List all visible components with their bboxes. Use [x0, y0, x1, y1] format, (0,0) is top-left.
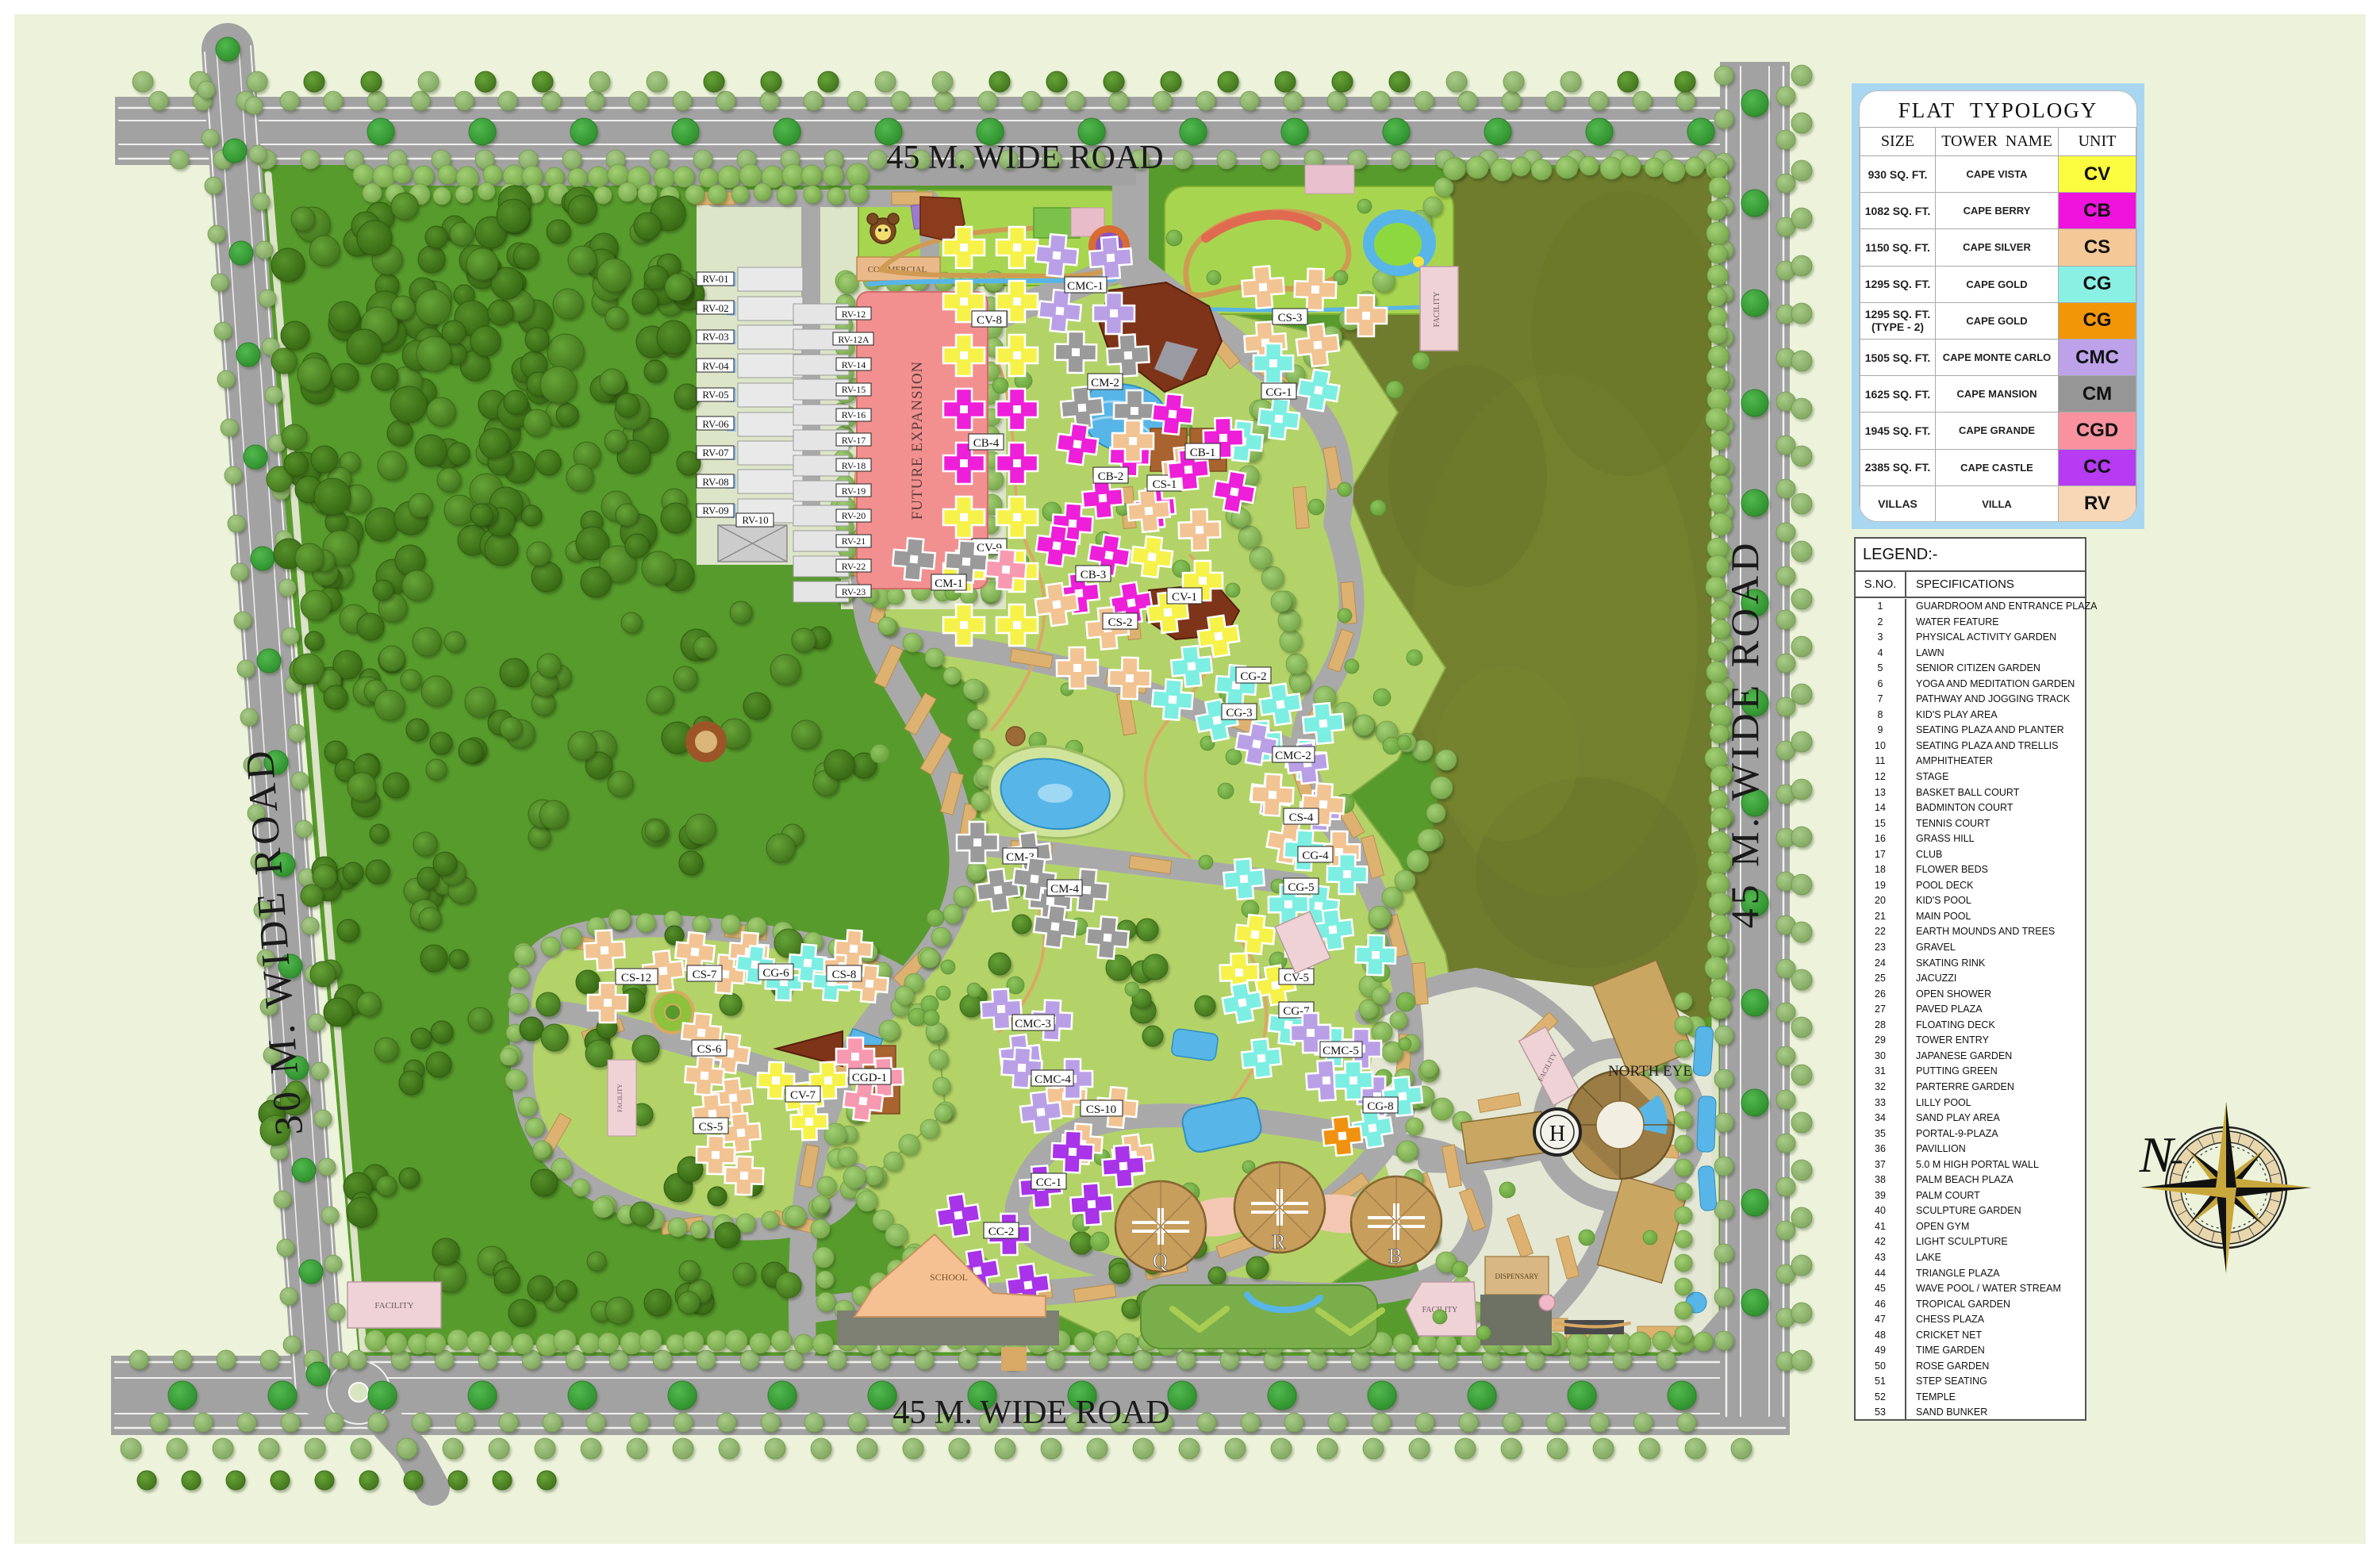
svg-text:NORTH EYE: NORTH EYE	[1608, 1063, 1692, 1080]
svg-text:CM-4: CM-4	[1050, 883, 1079, 896]
svg-text:RV-15: RV-15	[842, 384, 866, 395]
svg-text:CV-1: CV-1	[1172, 591, 1197, 604]
svg-text:CM-1: CM-1	[935, 578, 963, 590]
svg-text:CMC-3: CMC-3	[1015, 1018, 1051, 1030]
svg-text:RV-16: RV-16	[842, 409, 866, 420]
svg-text:45 M. WIDE ROAD: 45 M. WIDE ROAD	[886, 140, 1163, 176]
svg-text:CS-10: CS-10	[1086, 1103, 1116, 1116]
svg-text:CB-1: CB-1	[1190, 447, 1216, 459]
svg-text:RV-20: RV-20	[842, 510, 866, 521]
svg-text:FACILITY: FACILITY	[616, 1084, 624, 1112]
svg-text:CS-5: CS-5	[699, 1121, 724, 1134]
svg-text:CG-8: CG-8	[1367, 1100, 1393, 1113]
svg-text:CMC-1: CMC-1	[1067, 280, 1104, 293]
svg-text:CG-6: CG-6	[762, 967, 789, 980]
svg-text:RV-04: RV-04	[702, 360, 729, 372]
svg-text:RV-17: RV-17	[842, 435, 866, 446]
svg-text:RV-01: RV-01	[702, 273, 728, 285]
svg-text:RV-14: RV-14	[842, 359, 866, 370]
svg-text:DISPENSARY: DISPENSARY	[1495, 1272, 1539, 1280]
svg-text:RV-02: RV-02	[702, 302, 728, 314]
svg-text:CB-2: CB-2	[1098, 470, 1124, 483]
svg-text:CMC-2: CMC-2	[1275, 750, 1311, 762]
svg-text:45 M. WIDE ROAD: 45 M. WIDE ROAD	[1722, 539, 1767, 929]
svg-text:CS-2: CS-2	[1108, 616, 1133, 629]
svg-text:RV-10: RV-10	[742, 514, 768, 526]
svg-text:RV-09: RV-09	[702, 505, 728, 516]
svg-text:CG-4: CG-4	[1302, 850, 1329, 862]
svg-text:RV-12A: RV-12A	[838, 334, 869, 345]
svg-text:FACILITY: FACILITY	[1433, 292, 1441, 328]
svg-text:CB-3: CB-3	[1081, 569, 1107, 581]
svg-text:FACILITY: FACILITY	[374, 1301, 413, 1310]
svg-text:CV-9: CV-9	[977, 542, 1002, 555]
svg-text:R: R	[1272, 1230, 1286, 1253]
svg-text:CG-3: CG-3	[1226, 707, 1252, 720]
svg-text:RV-22: RV-22	[842, 561, 866, 572]
svg-text:N: N	[2139, 1126, 2176, 1183]
svg-text:CMC-4: CMC-4	[1035, 1073, 1071, 1086]
svg-text:CS-4: CS-4	[1289, 812, 1314, 824]
svg-text:CG-5: CG-5	[1288, 881, 1314, 894]
svg-text:RV-19: RV-19	[842, 485, 866, 497]
svg-text:CM-2: CM-2	[1091, 377, 1119, 389]
svg-text:CS-6: CS-6	[697, 1043, 722, 1056]
svg-text:CC-1: CC-1	[1036, 1176, 1062, 1189]
svg-text:SCHOOL: SCHOOL	[930, 1272, 968, 1283]
svg-text:CGD-1: CGD-1	[852, 1072, 887, 1084]
svg-text:FUTURE EXPANSION: FUTURE EXPANSION	[909, 361, 926, 520]
svg-text:RV-21: RV-21	[842, 535, 866, 547]
svg-text:Q: Q	[1153, 1249, 1168, 1272]
svg-text:B: B	[1388, 1245, 1402, 1268]
svg-text:RV-07: RV-07	[702, 447, 729, 459]
svg-text:CC-2: CC-2	[988, 1226, 1015, 1238]
svg-text:CV-7: CV-7	[790, 1089, 816, 1102]
svg-text:CS-12: CS-12	[621, 972, 651, 984]
svg-text:H: H	[1549, 1122, 1565, 1146]
svg-text:RV-18: RV-18	[842, 460, 866, 471]
svg-text:RV-05: RV-05	[702, 389, 728, 401]
svg-text:CS-3: CS-3	[1278, 312, 1303, 324]
svg-text:RV-08: RV-08	[702, 476, 728, 488]
svg-text:CMC-5: CMC-5	[1322, 1045, 1359, 1057]
svg-text:RV-23: RV-23	[842, 586, 866, 597]
svg-text:CV-8: CV-8	[977, 314, 1002, 327]
svg-text:RV-12: RV-12	[842, 309, 866, 320]
svg-text:CG-2: CG-2	[1240, 670, 1266, 683]
svg-text:CB-4: CB-4	[973, 437, 1000, 450]
svg-text:RV-06: RV-06	[702, 418, 729, 430]
svg-text:RV-03: RV-03	[702, 331, 728, 343]
svg-text:CS-7: CS-7	[693, 969, 717, 981]
svg-text:CS-8: CS-8	[832, 969, 857, 981]
svg-text:CS-1: CS-1	[1153, 478, 1177, 491]
svg-text:45 M. WIDE ROAD: 45 M. WIDE ROAD	[892, 1395, 1169, 1431]
svg-text:CG-1: CG-1	[1265, 386, 1292, 399]
